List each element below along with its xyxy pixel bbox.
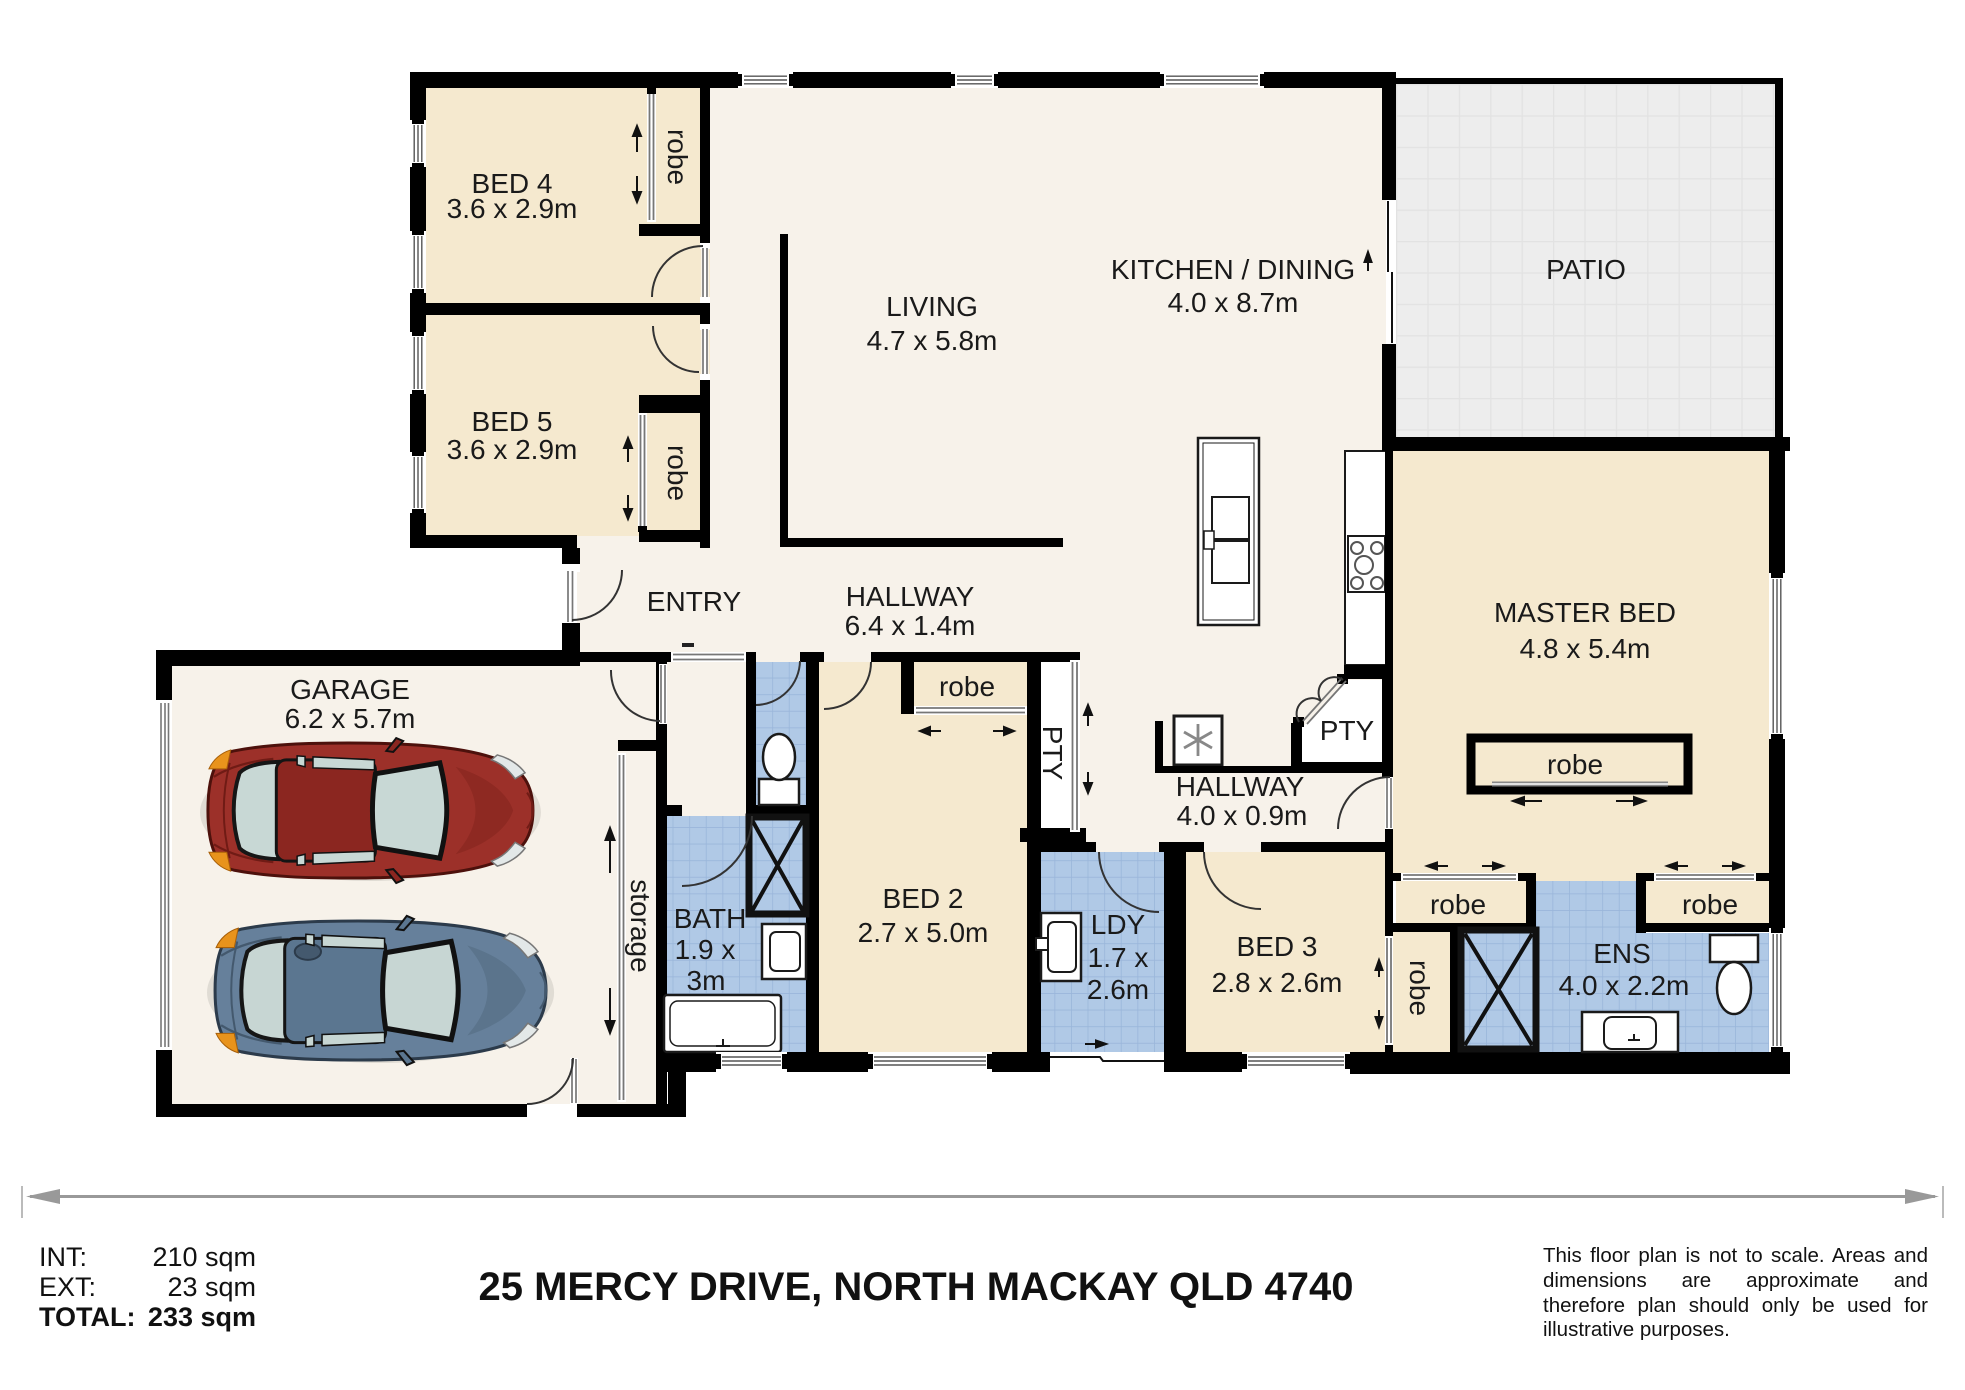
svg-text:25 MERCY DRIVE, NORTH MACKAY Q: 25 MERCY DRIVE, NORTH MACKAY QLD 4740	[478, 1265, 1353, 1309]
svg-text:GARAGE: GARAGE	[290, 674, 410, 705]
svg-text:4.0 x 8.7m: 4.0 x 8.7m	[1168, 287, 1299, 318]
svg-text:4.8 x 5.4m: 4.8 x 5.4m	[1520, 633, 1651, 664]
svg-text:robe: robe	[662, 445, 693, 501]
svg-text:robe: robe	[1547, 749, 1603, 780]
svg-text:4.0 x 0.9m: 4.0 x 0.9m	[1177, 800, 1308, 831]
svg-text:robe: robe	[1404, 960, 1435, 1016]
svg-text:PTY: PTY	[1037, 726, 1068, 781]
svg-text:PATIO: PATIO	[1546, 254, 1626, 285]
svg-text:233 sqm: 233 sqm	[148, 1302, 256, 1332]
svg-text:1.7 x: 1.7 x	[1088, 942, 1149, 973]
svg-text:BED 3: BED 3	[1237, 931, 1318, 962]
svg-text:BED 5: BED 5	[472, 406, 553, 437]
svg-text:MASTER BED: MASTER BED	[1494, 597, 1676, 628]
svg-text:BATH: BATH	[674, 903, 747, 934]
svg-text:HALLWAY: HALLWAY	[846, 581, 975, 612]
svg-text:2.8 x 2.6m: 2.8 x 2.6m	[1212, 967, 1343, 998]
svg-text:6.2 x 5.7m: 6.2 x 5.7m	[285, 703, 416, 734]
svg-text:robe: robe	[1430, 889, 1486, 920]
svg-text:6.4 x 1.4m: 6.4 x 1.4m	[845, 610, 976, 641]
svg-text:2.7 x 5.0m: 2.7 x 5.0m	[858, 917, 989, 948]
svg-text:TOTAL:: TOTAL:	[39, 1302, 135, 1332]
svg-text:HALLWAY: HALLWAY	[1176, 771, 1305, 802]
svg-text:23 sqm: 23 sqm	[167, 1272, 256, 1302]
svg-text:3.6 x 2.9m: 3.6 x 2.9m	[447, 434, 578, 465]
svg-text:210 sqm: 210 sqm	[152, 1242, 256, 1272]
svg-text:3m: 3m	[687, 965, 726, 996]
svg-text:BED 2: BED 2	[883, 883, 964, 914]
svg-text:4.7 x 5.8m: 4.7 x 5.8m	[867, 325, 998, 356]
svg-text:storage: storage	[625, 879, 656, 972]
svg-text:LDY: LDY	[1091, 909, 1146, 940]
svg-text:PTY: PTY	[1320, 715, 1375, 746]
svg-text:4.0 x 2.2m: 4.0 x 2.2m	[1559, 970, 1690, 1001]
svg-text:KITCHEN / DINING: KITCHEN / DINING	[1111, 254, 1355, 285]
svg-text:3.6 x 2.9m: 3.6 x 2.9m	[447, 193, 578, 224]
svg-text:robe: robe	[662, 129, 693, 185]
svg-text:INT:: INT:	[39, 1242, 87, 1272]
svg-text:LIVING: LIVING	[886, 291, 978, 322]
svg-text:1.9 x: 1.9 x	[675, 934, 736, 965]
svg-text:ENS: ENS	[1593, 938, 1651, 969]
svg-text:robe: robe	[939, 671, 995, 702]
svg-text:EXT:: EXT:	[39, 1272, 96, 1302]
svg-text:robe: robe	[1682, 889, 1738, 920]
svg-text:2.6m: 2.6m	[1087, 974, 1149, 1005]
svg-text:ENTRY: ENTRY	[647, 586, 742, 617]
